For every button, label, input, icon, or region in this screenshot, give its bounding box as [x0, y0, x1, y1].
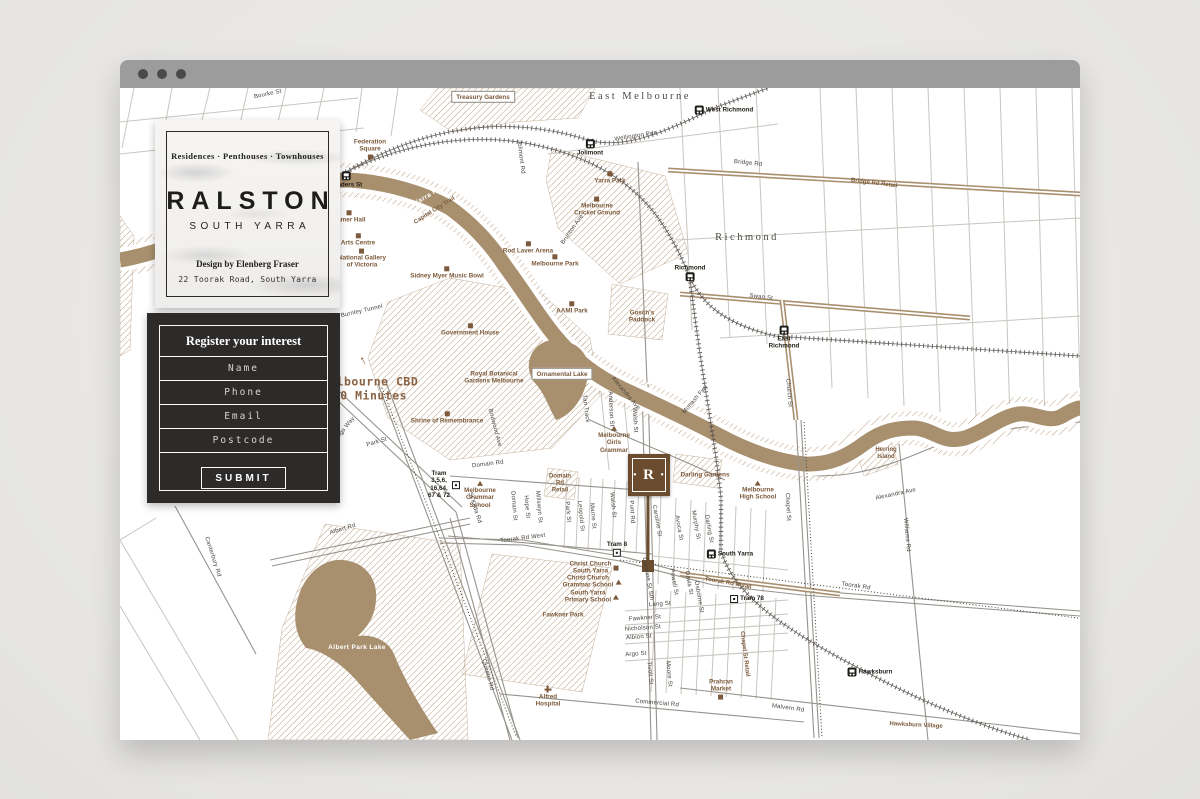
- register-form: Register your interest SUBMIT: [147, 313, 340, 503]
- marker-letter: · R ·: [632, 467, 665, 484]
- brand-subtitle: SOUTH YARRA: [185, 221, 310, 232]
- brand-card: Residences · Penthouses · Townhouses RAL…: [155, 120, 340, 308]
- page-background: East MelbourneRichmondTreasury GardensOr…: [0, 0, 1200, 799]
- window-control-dot[interactable]: [157, 69, 167, 79]
- postcode-field[interactable]: [160, 429, 327, 453]
- register-form-border: Register your interest SUBMIT: [159, 325, 328, 491]
- brand-card-border: Residences · Penthouses · Townhouses RAL…: [166, 131, 329, 297]
- browser-window: East MelbourneRichmondTreasury GardensOr…: [120, 60, 1080, 740]
- brand-title: RALSTON: [159, 187, 335, 216]
- map: East MelbourneRichmondTreasury GardensOr…: [120, 88, 1080, 740]
- brand-designer: Design by Elenberg Fraser: [196, 259, 299, 269]
- phone-field[interactable]: [160, 381, 327, 405]
- ralston-map-marker: · R ·: [628, 454, 670, 496]
- email-field[interactable]: [160, 405, 327, 429]
- window-control-dot[interactable]: [176, 69, 186, 79]
- submit-row: SUBMIT: [160, 453, 327, 490]
- name-field[interactable]: [160, 357, 327, 381]
- window-control-dot[interactable]: [138, 69, 148, 79]
- brand-address: 22 Toorak Road, South Yarra: [178, 275, 316, 284]
- brand-tagline: Residences · Penthouses · Townhouses: [171, 151, 324, 161]
- register-form-title: Register your interest: [160, 326, 327, 357]
- submit-button[interactable]: SUBMIT: [201, 467, 285, 489]
- browser-chrome-bar: [120, 60, 1080, 88]
